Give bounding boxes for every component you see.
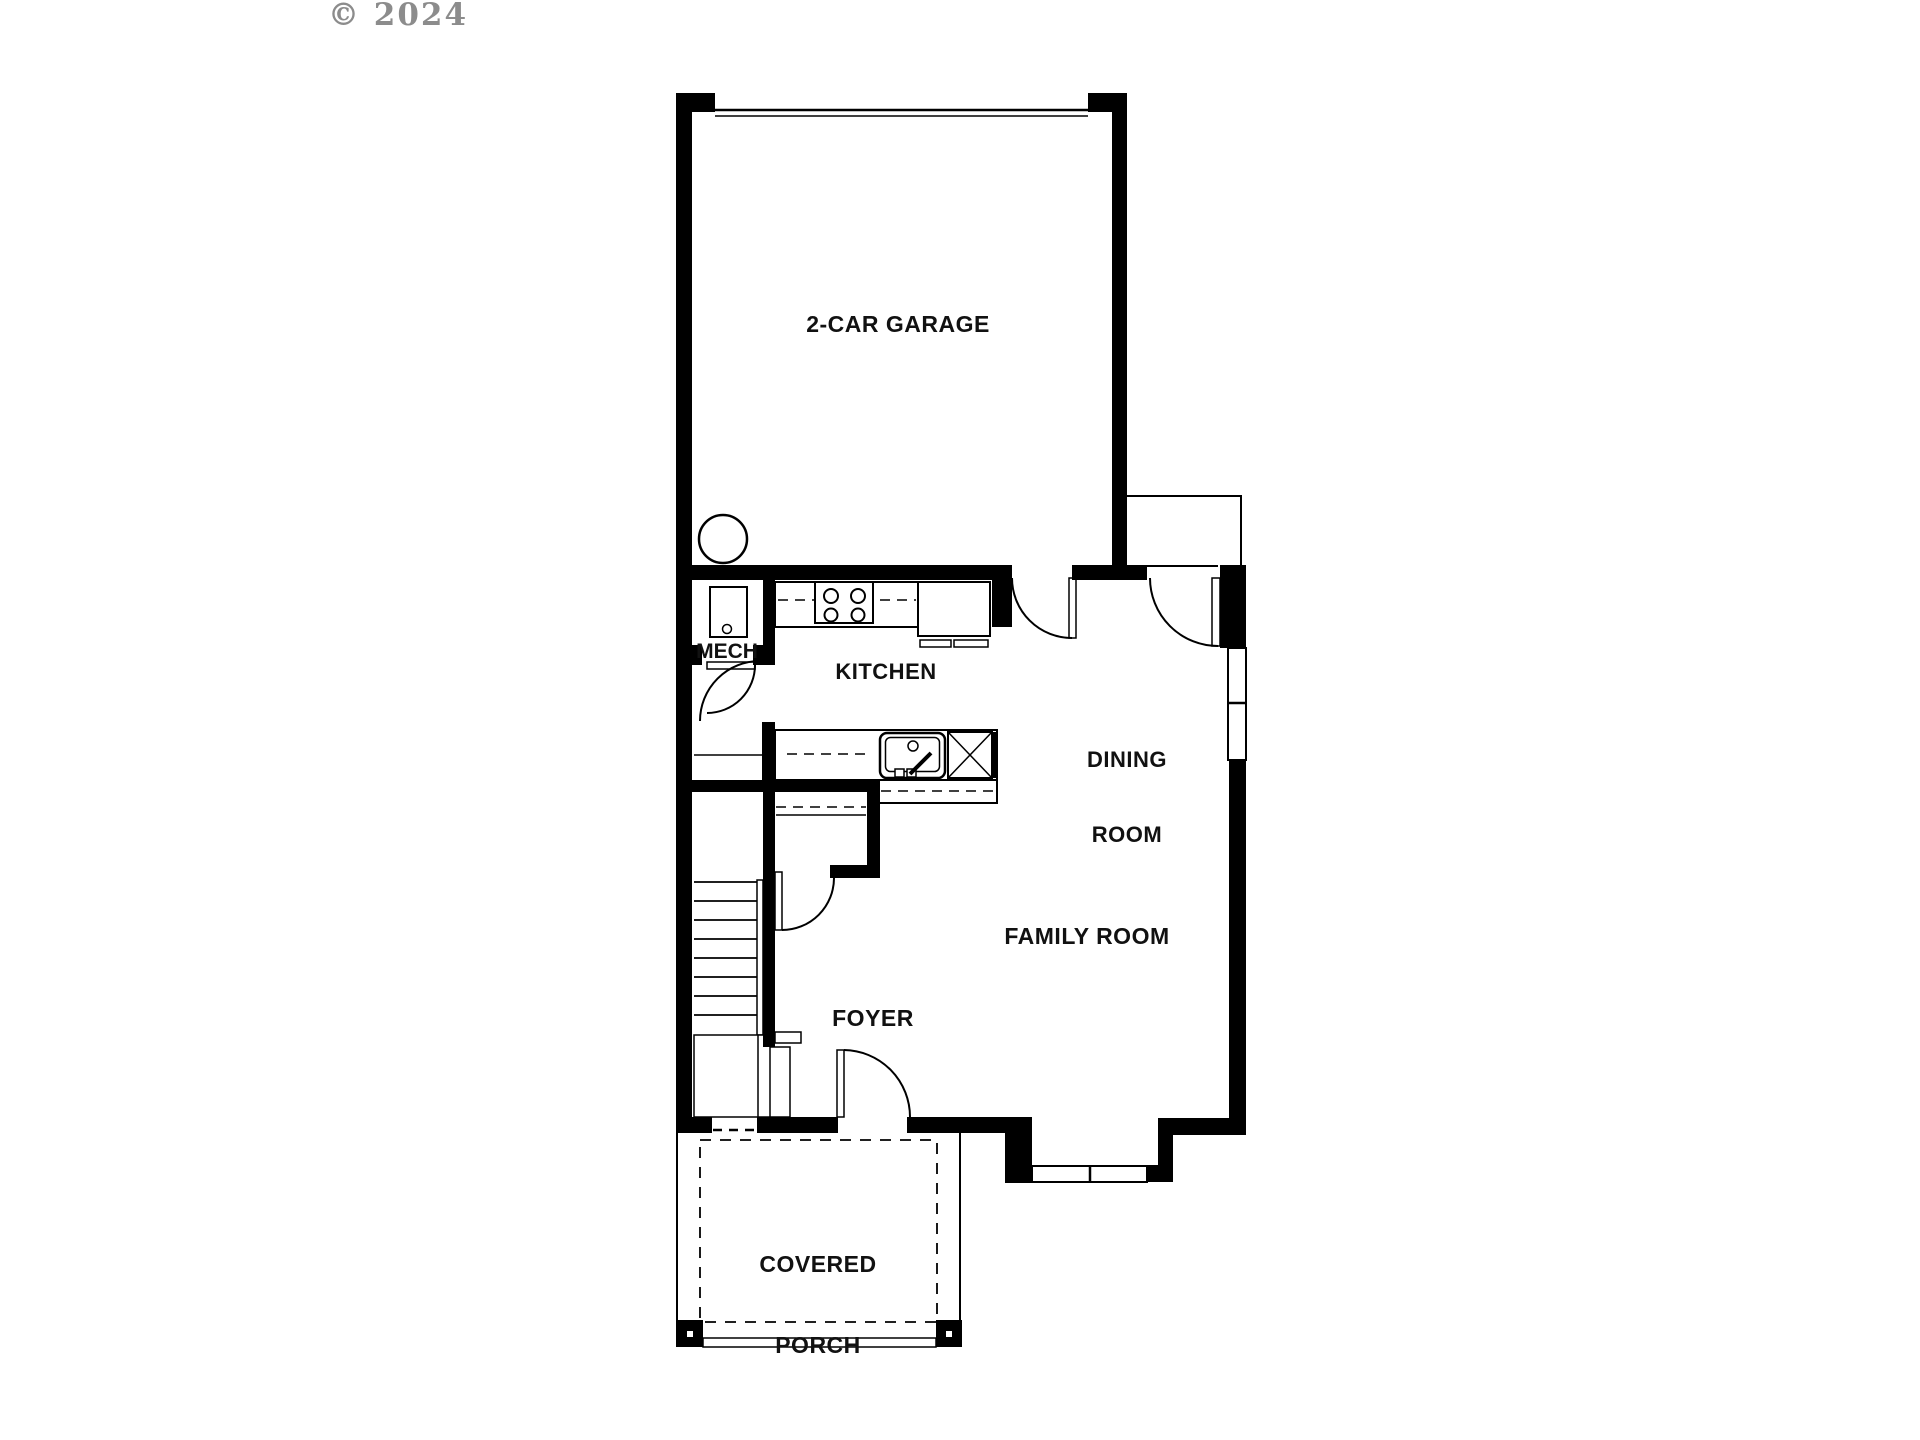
foyer-label: FOYER bbox=[773, 1006, 973, 1032]
left-exterior-wall bbox=[676, 93, 692, 1133]
mech-door bbox=[707, 662, 755, 713]
kitchen-counter bbox=[775, 582, 990, 647]
porch-label-line1: COVERED bbox=[718, 1251, 918, 1278]
refrigerator bbox=[918, 582, 990, 647]
front-door bbox=[837, 1050, 910, 1117]
pantry-door bbox=[775, 872, 834, 930]
counter-end-panel bbox=[992, 732, 998, 778]
copyright-text: © 2024 bbox=[328, 0, 548, 33]
kitchen-dining-stub-wall bbox=[992, 580, 1012, 627]
dishwasher bbox=[948, 732, 992, 778]
mech-label: MECH bbox=[667, 640, 787, 664]
dining-label-line2: ROOM bbox=[1027, 822, 1227, 847]
stairs bbox=[694, 880, 801, 1117]
dining-room-label: DINING ROOM bbox=[1027, 697, 1227, 897]
garage-right-wall bbox=[1112, 93, 1127, 580]
stair-railing bbox=[770, 1047, 790, 1117]
stair-newel bbox=[775, 1032, 801, 1043]
pantry-top-wall bbox=[676, 780, 880, 792]
covered-porch-label: COVERED PORCH bbox=[718, 1197, 918, 1413]
family-room-label: FAMILY ROOM bbox=[987, 924, 1187, 950]
porch-label-line2: PORCH bbox=[718, 1332, 918, 1359]
range-cooktop bbox=[815, 582, 873, 623]
garage-label: 2-CAR GARAGE bbox=[798, 312, 998, 338]
kitchen-sink bbox=[880, 733, 945, 778]
front-wall bbox=[676, 1117, 712, 1133]
kitchen-label: KITCHEN bbox=[786, 660, 986, 685]
dining-label-line1: DINING bbox=[1027, 747, 1227, 772]
side-entry-door bbox=[1150, 578, 1220, 646]
garage-bottom-wall bbox=[676, 565, 1012, 580]
floor-plan: © 2024 2-CAR GARAGE KITCHEN DINING ROOM … bbox=[0, 0, 1920, 1440]
dining-window bbox=[1228, 648, 1246, 760]
pantry-right-wall bbox=[867, 780, 880, 878]
kitchen-island bbox=[775, 730, 997, 803]
bay-window bbox=[1032, 1166, 1147, 1182]
right-exterior-wall bbox=[1229, 760, 1246, 1135]
garage-column-circle bbox=[699, 515, 747, 563]
floor-plan-drawing bbox=[0, 0, 1920, 1440]
water-heater bbox=[710, 587, 747, 637]
side-landing bbox=[1127, 495, 1242, 566]
garage-entry-door bbox=[1012, 578, 1076, 638]
garage-door bbox=[715, 110, 1088, 116]
